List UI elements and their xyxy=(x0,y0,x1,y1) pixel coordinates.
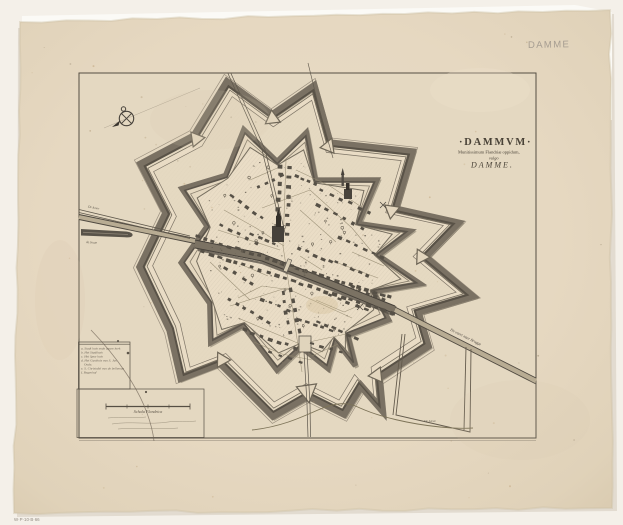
svg-text:Schala Flandrica: Schala Flandrica xyxy=(134,409,163,414)
svg-text:De Lieve: De Lieve xyxy=(423,419,436,423)
svg-text:de Soute: de Soute xyxy=(86,240,98,245)
svg-text:W·P·10·B·66: W·P·10·B·66 xyxy=(14,517,40,522)
svg-text:DAMME.: DAMME. xyxy=(470,161,514,170)
svg-text:DAMME: DAMME xyxy=(528,39,570,51)
svg-text:f. Begynhof: f. Begynhof xyxy=(81,371,97,375)
svg-text:·DAMMVM·: ·DAMMVM· xyxy=(459,137,532,148)
